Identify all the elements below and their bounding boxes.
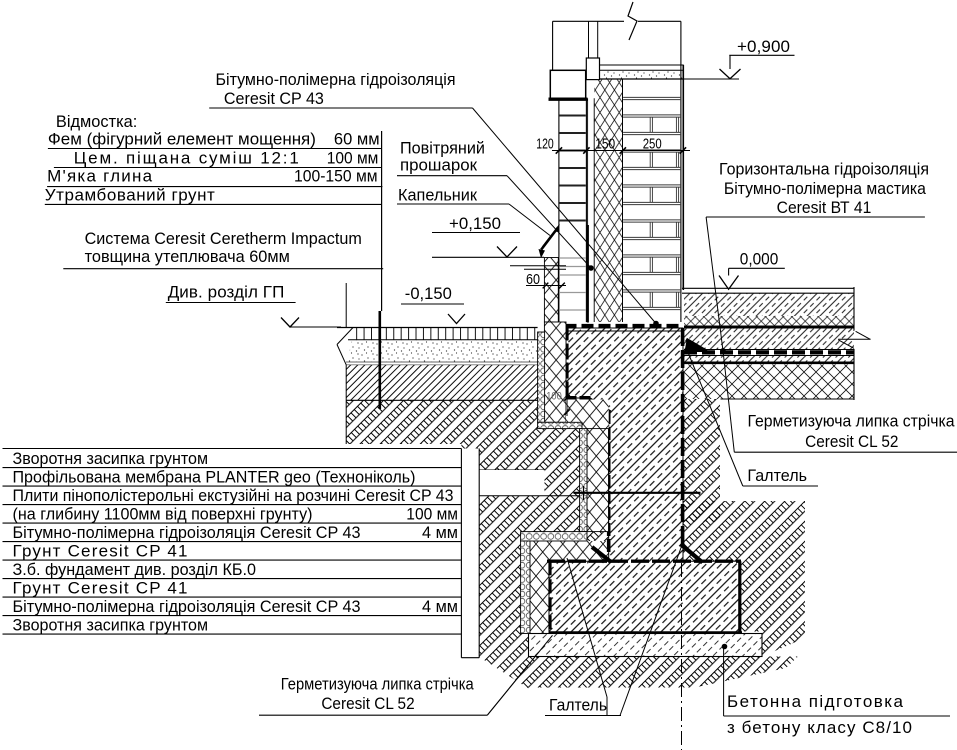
svg-text:Галтель: Галтель [747,466,807,485]
svg-text:товщина утеплювача 60мм: товщина утеплювача 60мм [85,247,290,266]
svg-text:з бетону класу С8/10: з бетону класу С8/10 [727,718,912,737]
svg-text:Див. розділ ГП: Див. розділ ГП [168,283,285,302]
svg-text:Ceresit CL 52: Ceresit CL 52 [805,432,898,451]
svg-text:0,000: 0,000 [740,250,779,269]
svg-text:Цем. піщана суміш 12:1: Цем. піщана суміш 12:1 [74,149,299,168]
svg-text:Ceresit CL 52: Ceresit CL 52 [321,694,414,713]
svg-text:100 мм: 100 мм [327,149,379,168]
svg-text:100-150 мм: 100-150 мм [294,167,378,186]
svg-text:М'яка глина: М'яка глина [47,167,153,186]
svg-text:-0,150: -0,150 [405,284,452,303]
svg-text:+0,900: +0,900 [737,37,790,56]
svg-text:Герметизуюча липка стрічка: Герметизуюча липка стрічка [281,675,474,694]
svg-text:Зворотня засипка грунтом: Зворотня засипка грунтом [13,616,209,635]
svg-text:Відмостка:: Відмостка: [56,112,137,131]
svg-text:Система Ceresit Ceretherm Impa: Система Ceresit Ceretherm Impactum [85,229,362,248]
svg-text:Плити пінополістерольні екстуз: Плити пінополістерольні екстузійні на ро… [13,486,454,505]
svg-text:4 мм: 4 мм [422,523,458,542]
svg-text:Горизонтальна гідроізоляція: Горизонтальна гідроізоляція [719,160,929,179]
svg-text:+0,150: +0,150 [449,214,501,233]
svg-text:Бітумно-полімерна мастика: Бітумно-полімерна мастика [724,179,927,198]
svg-text:100: 100 [546,391,562,403]
svg-text:60 мм: 60 мм [334,130,380,149]
svg-text:Бетонна підготовка: Бетонна підготовка [727,692,904,711]
svg-text:120: 120 [536,137,554,153]
svg-text:Утрамбований грунт: Утрамбований грунт [45,186,215,205]
svg-text:Профільована мембрана PLANTER: Профільована мембрана PLANTER geo (Техно… [13,468,416,487]
svg-text:Герметизуюча липка стрічка: Герметизуюча липка стрічка [747,412,955,431]
svg-text:(на глибину 1100мм від поверхн: (на глибину 1100мм від поверхні грунту) [13,505,313,524]
svg-text:Грунт Ceresit CP 41: Грунт Ceresit CP 41 [13,579,188,598]
svg-text:Грунт Ceresit CP 41: Грунт Ceresit CP 41 [13,542,188,561]
svg-text:Зворотня засипка грунтом: Зворотня засипка грунтом [13,449,209,468]
svg-text:Фем (фігурний елемент мощення): Фем (фігурний елемент мощення) [48,130,316,149]
svg-text:Бітумно-полімерна гідроізоляці: Бітумно-полімерна гідроізоляція Ceresit … [13,523,361,542]
svg-text:Бітумно-полімерна гідроізоляці: Бітумно-полімерна гідроізоляція [216,70,456,89]
svg-text:З.б. фундамент див. розділ КБ.: З.б. фундамент див. розділ КБ.0 [13,560,257,579]
svg-text:Бітумно-полімерна гідроізоляці: Бітумно-полімерна гідроізоляція Ceresit … [13,597,361,616]
svg-text:Галтель: Галтель [549,696,607,715]
svg-text:Капельник: Капельник [398,186,478,205]
svg-text:250: 250 [643,137,662,153]
svg-text:Ceresit CP 43: Ceresit CP 43 [224,89,324,108]
svg-text:Ceresit ВТ 41: Ceresit ВТ 41 [777,198,872,217]
svg-text:прошарок: прошарок [400,156,478,175]
svg-text:100 мм: 100 мм [406,505,458,524]
svg-text:4 мм: 4 мм [422,597,458,616]
svg-text:150: 150 [595,137,615,153]
